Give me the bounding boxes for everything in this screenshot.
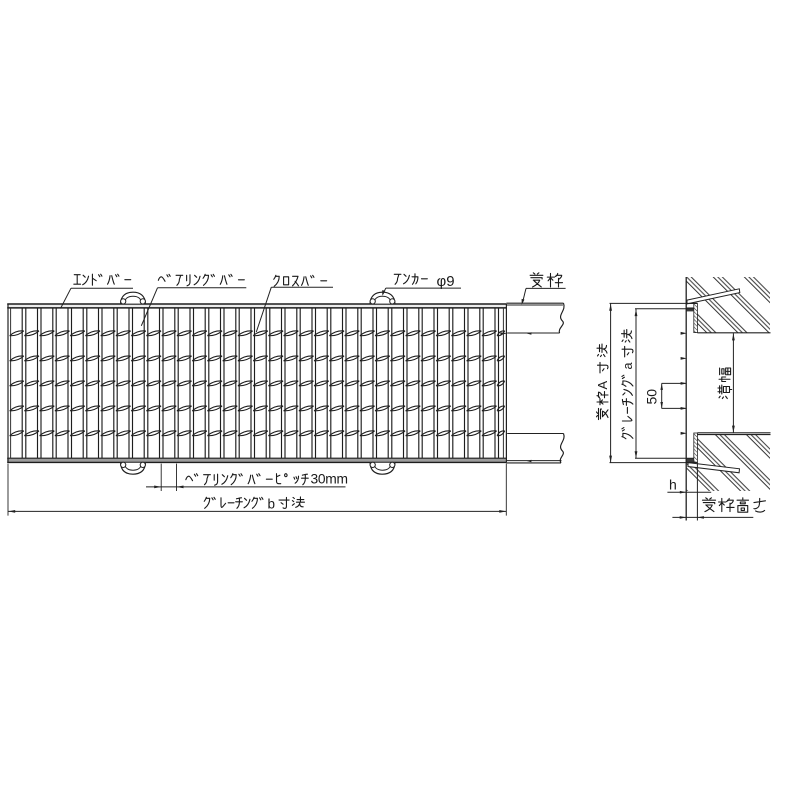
svg-text:30mm: 30mm	[311, 472, 348, 487]
svg-text:A: A	[595, 381, 610, 390]
svg-text:b: b	[268, 497, 276, 512]
svg-text:φ9: φ9	[437, 273, 455, 290]
svg-text:a: a	[621, 363, 635, 370]
svg-text:h: h	[669, 476, 677, 492]
svg-text:50: 50	[643, 389, 659, 405]
